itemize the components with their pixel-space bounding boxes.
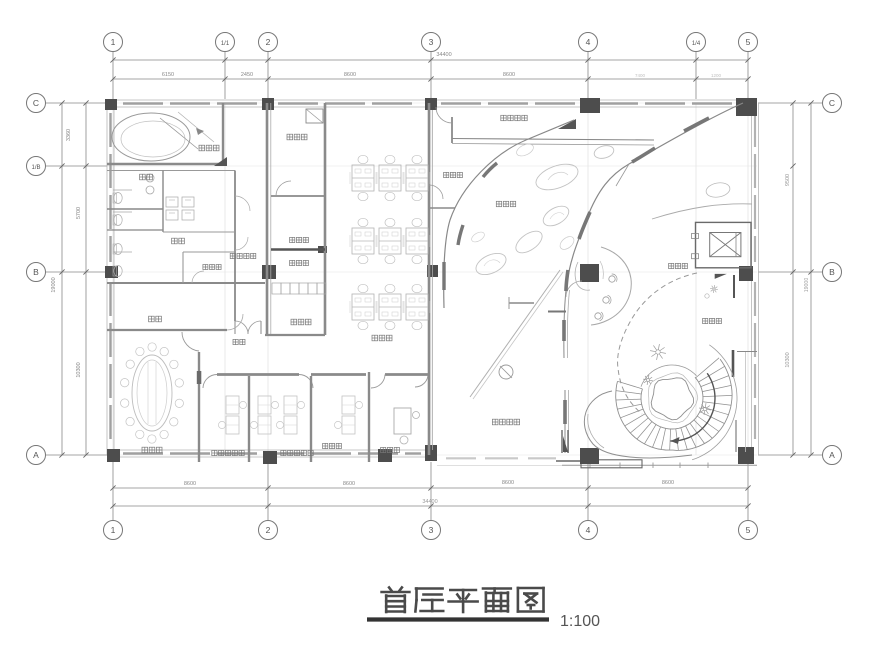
svg-text:A: A — [829, 450, 835, 460]
svg-text:1/B: 1/B — [31, 165, 40, 171]
svg-text:8600: 8600 — [184, 481, 196, 487]
svg-text:34400: 34400 — [436, 52, 451, 58]
svg-text:3: 3 — [429, 37, 434, 47]
svg-text:2: 2 — [266, 37, 271, 47]
svg-text:8600: 8600 — [343, 481, 355, 487]
svg-text:5700: 5700 — [76, 207, 82, 219]
svg-text:5: 5 — [746, 525, 751, 535]
svg-text:5: 5 — [746, 37, 751, 47]
svg-text:B: B — [33, 267, 39, 277]
svg-text:B: B — [829, 267, 835, 277]
svg-text:19000: 19000 — [51, 277, 57, 292]
svg-text:7400: 7400 — [635, 73, 646, 78]
svg-text:1:100: 1:100 — [560, 613, 600, 630]
svg-text:C: C — [829, 98, 835, 108]
svg-text:10300: 10300 — [76, 362, 82, 377]
svg-text:8600: 8600 — [503, 72, 515, 78]
svg-text:1/4: 1/4 — [692, 41, 701, 47]
svg-text:1/1: 1/1 — [221, 41, 230, 47]
svg-text:1: 1 — [111, 37, 116, 47]
svg-text:1200: 1200 — [711, 73, 722, 78]
svg-text:4: 4 — [586, 525, 591, 535]
svg-text:3: 3 — [429, 525, 434, 535]
svg-text:34400: 34400 — [422, 499, 437, 505]
svg-text:C: C — [33, 98, 39, 108]
svg-text:9500: 9500 — [785, 174, 791, 186]
svg-text:A: A — [33, 450, 39, 460]
svg-text:8600: 8600 — [344, 72, 356, 78]
svg-text:1: 1 — [111, 525, 116, 535]
svg-text:6150: 6150 — [162, 72, 174, 78]
svg-text:8600: 8600 — [502, 480, 514, 486]
svg-text:8600: 8600 — [662, 480, 674, 486]
svg-text:10300: 10300 — [785, 352, 791, 367]
svg-text:2450: 2450 — [241, 72, 253, 78]
svg-text:19000: 19000 — [804, 278, 810, 293]
svg-text:2: 2 — [266, 525, 271, 535]
svg-text:3360: 3360 — [66, 129, 72, 141]
svg-text:4: 4 — [586, 37, 591, 47]
